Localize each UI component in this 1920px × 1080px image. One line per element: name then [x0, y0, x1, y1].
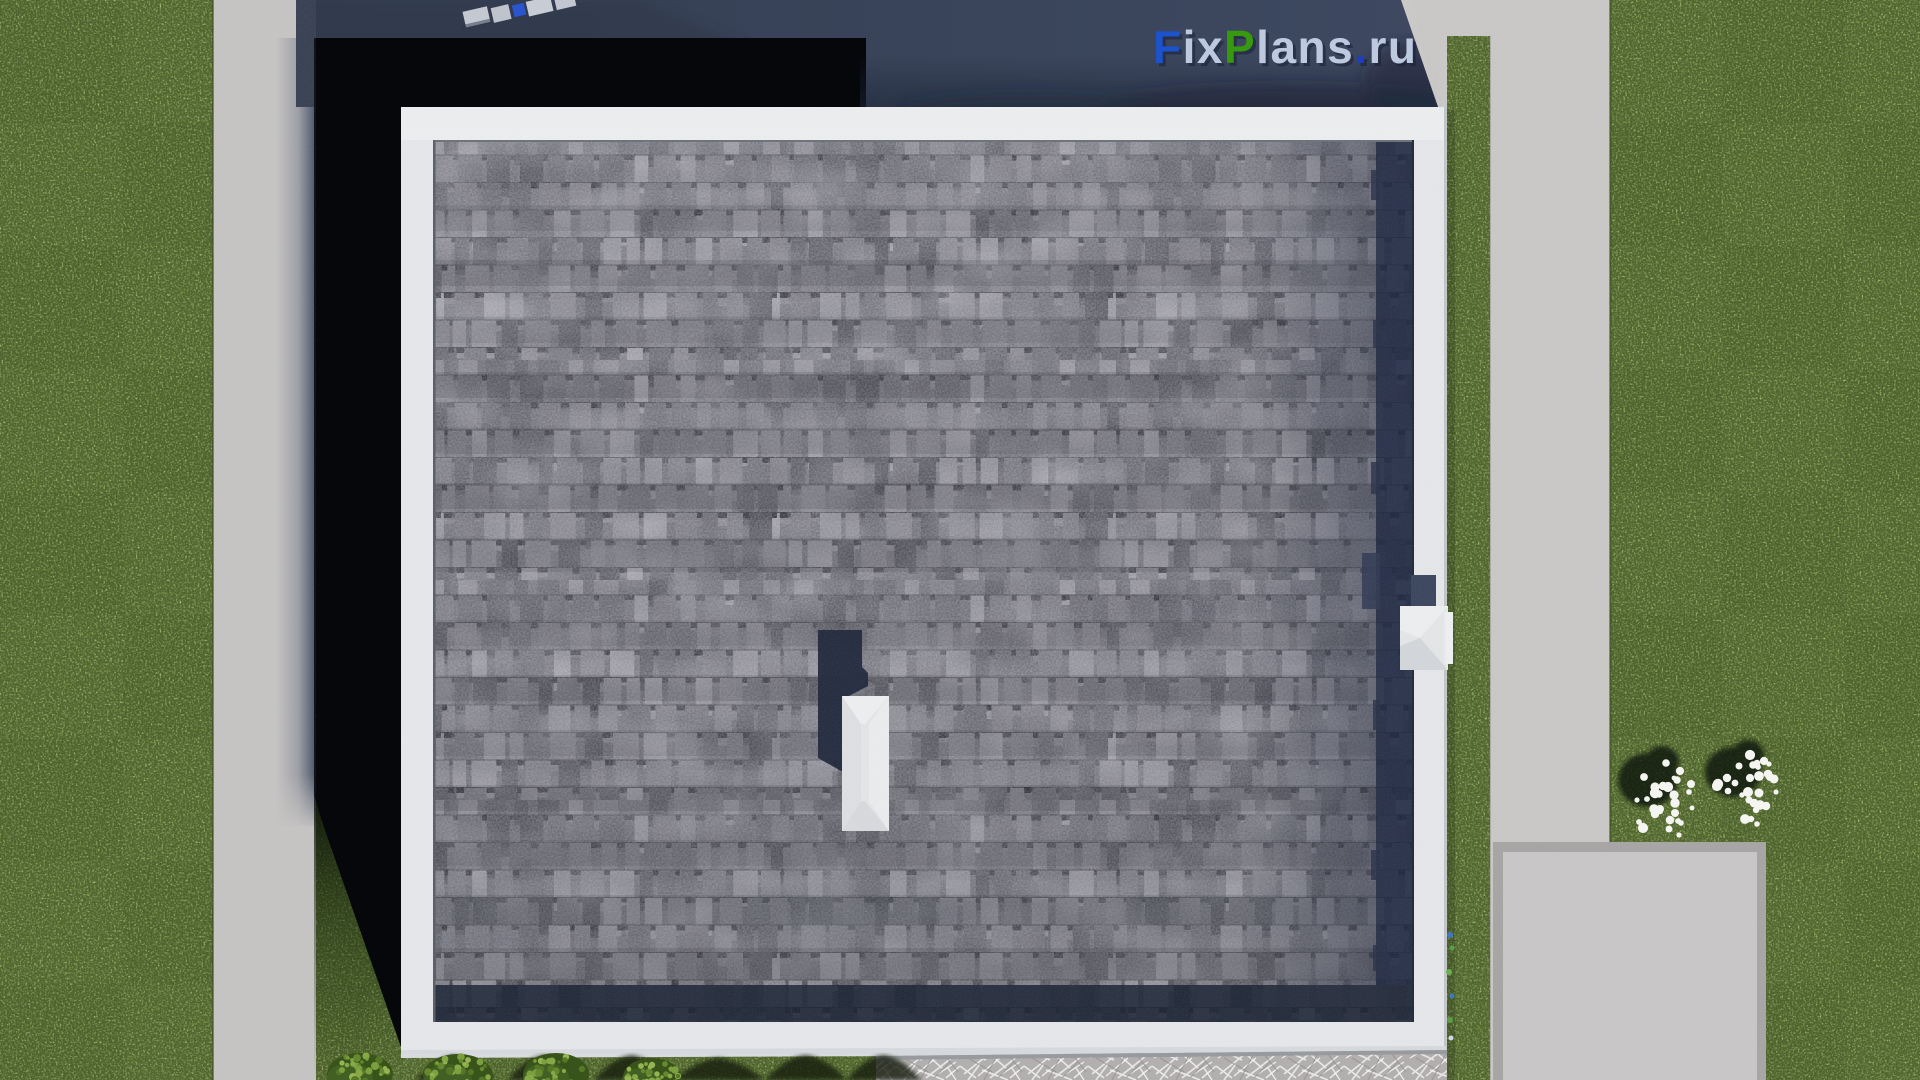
- svg-text:FixPlans.ru: FixPlans.ru: [1153, 21, 1418, 73]
